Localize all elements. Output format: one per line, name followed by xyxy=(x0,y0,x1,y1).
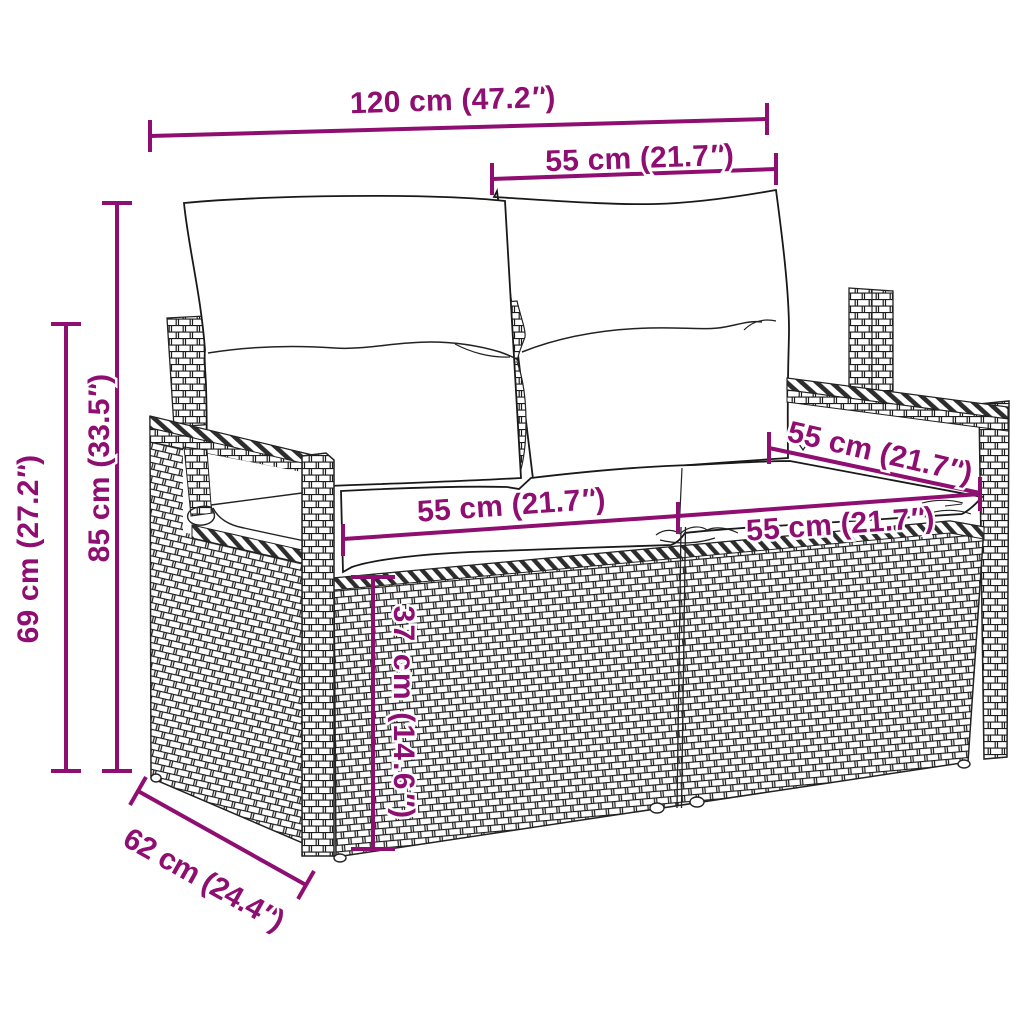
svg-text:120 cm (47.2″): 120 cm (47.2″) xyxy=(349,81,556,120)
svg-text:55 cm (21.7″): 55 cm (21.7″) xyxy=(545,139,735,179)
svg-text:85 cm (33.5″): 85 cm (33.5″) xyxy=(83,374,116,563)
svg-text:69 cm (27.2″): 69 cm (27.2″) xyxy=(12,455,45,644)
svg-text:37 cm (14.6″): 37 cm (14.6″) xyxy=(387,606,420,821)
